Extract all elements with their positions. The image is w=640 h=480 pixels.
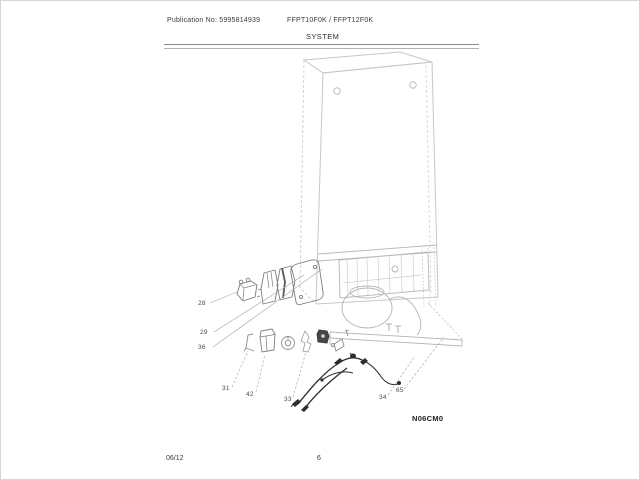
revision-date: 06/12 — [166, 455, 184, 462]
refrigerator-cabinet — [300, 52, 438, 304]
cover-part — [291, 260, 323, 305]
base-rail — [330, 303, 464, 346]
relay-part — [237, 278, 257, 301]
compressor — [342, 286, 421, 335]
nut-part — [317, 330, 329, 343]
wire-harness — [291, 353, 401, 412]
document-page: Publication No: 5995814939 FFPT10F0K / F… — [0, 0, 640, 480]
start-device-part — [257, 266, 295, 304]
grommet-part — [282, 337, 295, 350]
callout-36: 36 — [198, 344, 206, 351]
system-diagram — [1, 1, 640, 480]
page-number: 6 — [317, 455, 321, 462]
bracket-part — [244, 334, 254, 351]
callout-34: 34 — [379, 394, 387, 401]
callout-65: 65 — [396, 387, 404, 394]
figure-code: N06CM0 — [412, 414, 443, 423]
wire-clip-part — [301, 331, 311, 352]
callout-28: 28 — [198, 300, 206, 307]
callout-33: 33 — [284, 396, 292, 403]
callout-42: 42 — [246, 391, 254, 398]
machine-compartment — [318, 245, 464, 346]
callout-29: 29 — [200, 329, 208, 336]
capacitor-box-part — [260, 329, 275, 352]
callout-31: 31 — [222, 385, 230, 392]
